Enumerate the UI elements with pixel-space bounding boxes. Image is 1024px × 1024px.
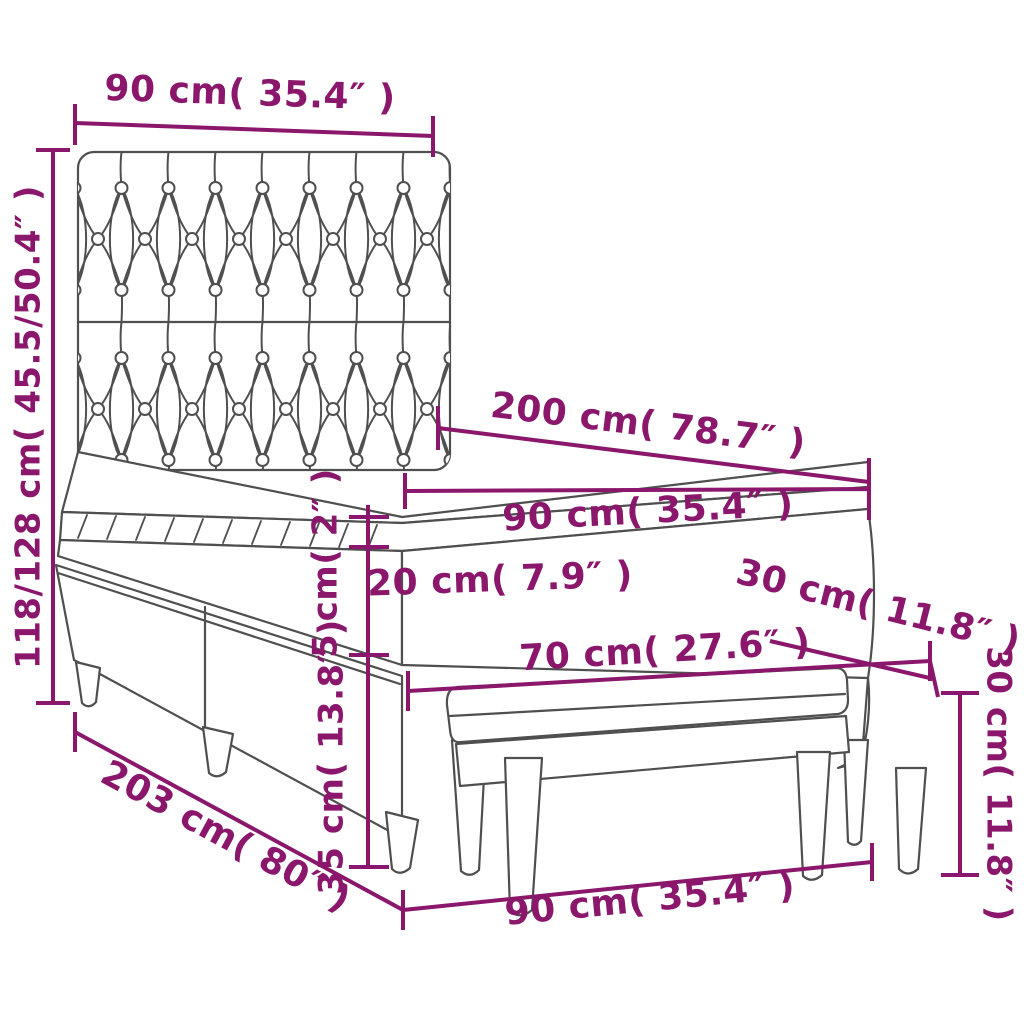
dim-floor-width-label: 90 cm( 35.4″ ) xyxy=(503,865,797,934)
headboard xyxy=(78,152,450,470)
bed-leg xyxy=(896,768,926,874)
dim-headboard-width-label: 90 cm( 35.4″ ) xyxy=(104,68,397,119)
bench-leg xyxy=(797,752,830,880)
dim-bed-height-label: 118/128 cm( 45.5/50.4″ ) xyxy=(9,185,49,669)
bed-leg xyxy=(203,727,233,776)
bed-leg xyxy=(386,812,418,873)
dim-bed-length-label: 200 cm( 78.7″ ) xyxy=(488,385,808,464)
tufting-pattern xyxy=(78,152,450,470)
dim-bed-length: 200 cm( 78.7″ ) xyxy=(438,385,869,482)
dim-bench-height: 30 cm( 11.8″ ) xyxy=(941,646,1019,922)
dim-headboard-width: 90 cm( 35.4″ ) xyxy=(75,68,433,157)
dim-base-height-label: 35 cm( 13.8″ ) xyxy=(312,619,352,895)
bed-dimension-diagram: 90 cm( 35.4″ ) 118/128 cm( 45.5/50.4″ ) … xyxy=(0,0,1024,1024)
dim-bed-height: 118/128 cm( 45.5/50.4″ ) xyxy=(9,150,71,703)
bench-leg xyxy=(844,740,868,845)
bed-leg xyxy=(76,662,100,706)
dim-bench-height-label: 30 cm( 11.8″ ) xyxy=(979,646,1019,922)
